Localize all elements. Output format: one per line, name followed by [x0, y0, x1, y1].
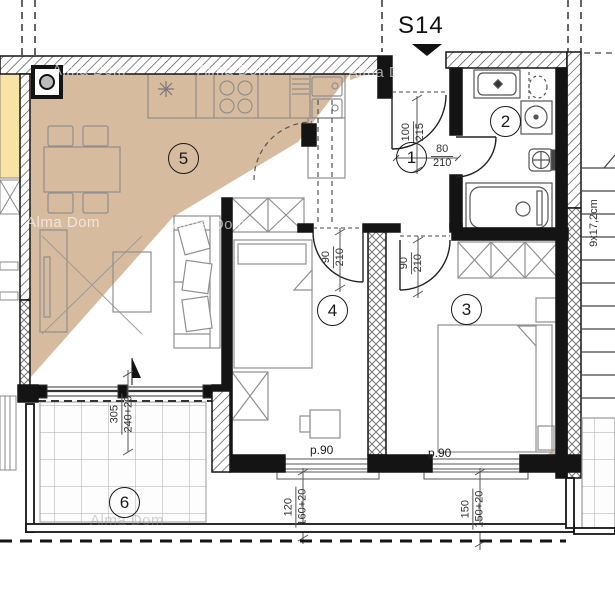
watermark: Alma Dom: [52, 62, 126, 79]
dim-bath-door: 80 210: [431, 143, 453, 169]
room-label-bedroom-right: 3: [451, 294, 482, 325]
room-label-bathroom: 2: [490, 106, 521, 137]
section-marker-triangle: [412, 44, 442, 56]
dim-width-value: 150: [459, 489, 473, 530]
room-label-bedroom-mid: 4: [317, 295, 348, 326]
dim-height-value: 210: [412, 252, 425, 274]
watermark: Alma Dom: [197, 62, 271, 79]
staircase: [581, 53, 615, 532]
section-label: S14: [398, 12, 444, 40]
watermark: Alma Dom: [348, 64, 422, 81]
watermark: Alma Dom: [172, 216, 246, 233]
neighbor-unit: [0, 74, 20, 470]
dim-bedroom-right-window: 150 150+20: [459, 489, 485, 530]
dim-bedroom-right-door: 90 210: [398, 252, 424, 274]
room-label-hall: 1: [396, 142, 427, 173]
stair-step-dimension: 9x17,2cm: [588, 199, 600, 247]
dim-width-value: 100: [400, 121, 414, 143]
floor-plan-s14: S14 1 2 3 4 5 6 100 215 80 210 90 210 90…: [0, 0, 615, 592]
dim-height-value: 240+20: [122, 394, 135, 435]
dim-height-value: 160+20: [296, 487, 309, 528]
room-label-living: 5: [168, 143, 199, 174]
dim-height-value: 215: [414, 121, 427, 143]
watermark: Alma Dom: [26, 214, 100, 231]
dim-width-value: 305: [108, 394, 122, 435]
watermark: Alma Dom: [36, 364, 110, 381]
dim-width-value: 90: [320, 246, 334, 268]
dim-entry-door: 100 215: [400, 121, 426, 143]
dim-terrace-opening: 305 240+20: [108, 394, 134, 435]
dim-width-value: 120: [282, 487, 296, 528]
dim-height-value: 210: [431, 157, 453, 170]
parapet-label-mid: p.90: [310, 443, 333, 457]
parapet-label-right: p.90: [428, 446, 451, 460]
dim-width-value: 90: [398, 252, 412, 274]
dim-bedroom-mid-door: 90 210: [320, 246, 346, 268]
dim-width-value: 80: [431, 143, 453, 157]
dim-bedroom-mid-window: 120 160+20: [282, 487, 308, 528]
dim-height-value: 150+20: [473, 489, 486, 530]
upper-floor-outline: [22, 0, 581, 56]
bedroom-right-furniture: [438, 242, 558, 452]
room-label-terrace: 6: [109, 487, 140, 518]
dim-height-value: 210: [334, 246, 347, 268]
bathroom-fixtures: [466, 70, 556, 232]
